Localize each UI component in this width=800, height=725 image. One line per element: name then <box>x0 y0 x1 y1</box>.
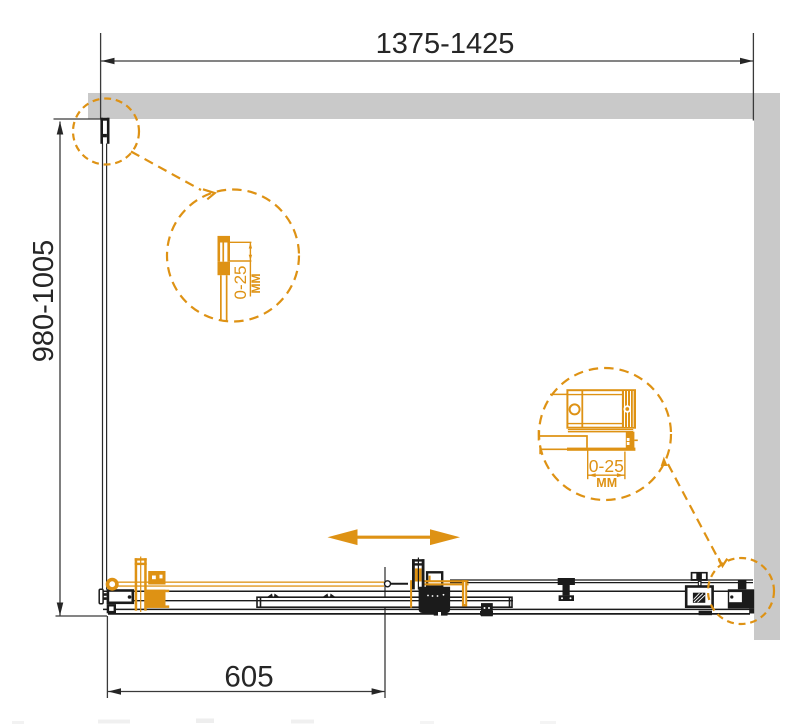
svg-text:0-25: 0-25 <box>589 456 624 476</box>
svg-text:1375-1425: 1375-1425 <box>376 28 515 60</box>
svg-text:0-25: 0-25 <box>231 265 250 299</box>
svg-text:MM: MM <box>596 476 617 490</box>
svg-text:980-1005: 980-1005 <box>28 240 60 363</box>
svg-text:MM: MM <box>249 274 263 294</box>
svg-text:605: 605 <box>224 661 273 694</box>
